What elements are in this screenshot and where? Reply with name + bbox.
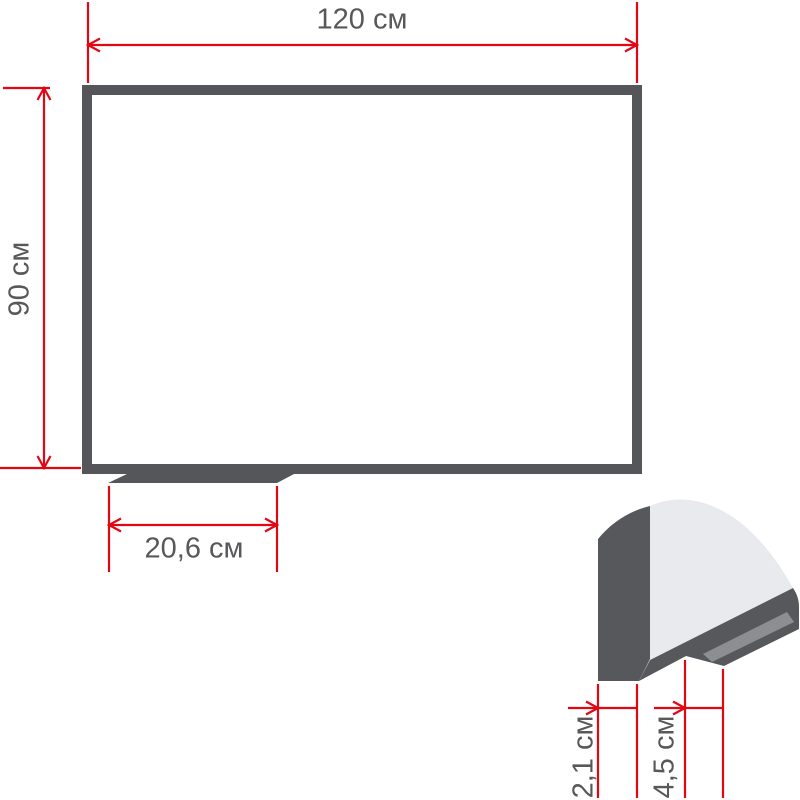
board-surface — [92, 95, 632, 464]
marker-tray — [108, 474, 294, 483]
profile-frame-section — [598, 506, 650, 681]
dimension-drawing — [0, 0, 800, 800]
frame-depth-dimension-label: 2,1 см — [570, 716, 599, 799]
tray-depth-dimension-label: 4,5 см — [651, 716, 680, 799]
width-dimension-label: 120 см — [317, 6, 408, 35]
tray-width-dimension-label: 20,6 см — [145, 535, 244, 564]
height-dimension-label: 90 см — [6, 242, 35, 317]
board-front-view — [82, 85, 642, 483]
profile-detail-view — [598, 500, 799, 681]
diagram-canvas: 120 см 90 см 20,6 см 2,1 см 4,5 см — [0, 0, 800, 800]
